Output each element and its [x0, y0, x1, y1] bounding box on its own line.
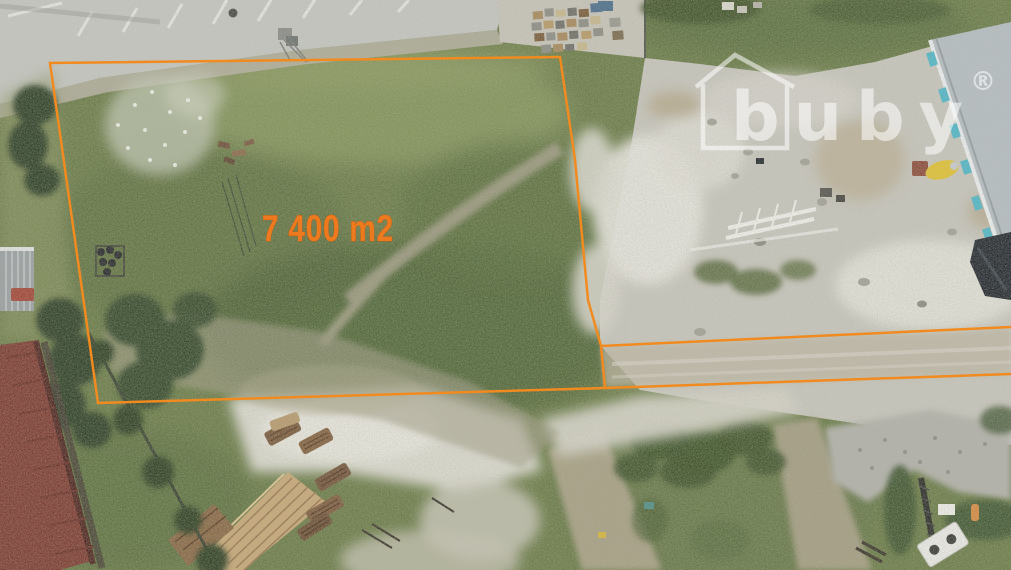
- brand-text: buby: [731, 78, 983, 157]
- aerial-photo: 7 400 m2 buby ®: [0, 0, 1011, 570]
- registered-mark: ®: [970, 67, 996, 97]
- screenshot-root: 7 400 m2 buby ®: [0, 0, 1011, 570]
- plot-area-label: 7 400 m2: [262, 208, 394, 249]
